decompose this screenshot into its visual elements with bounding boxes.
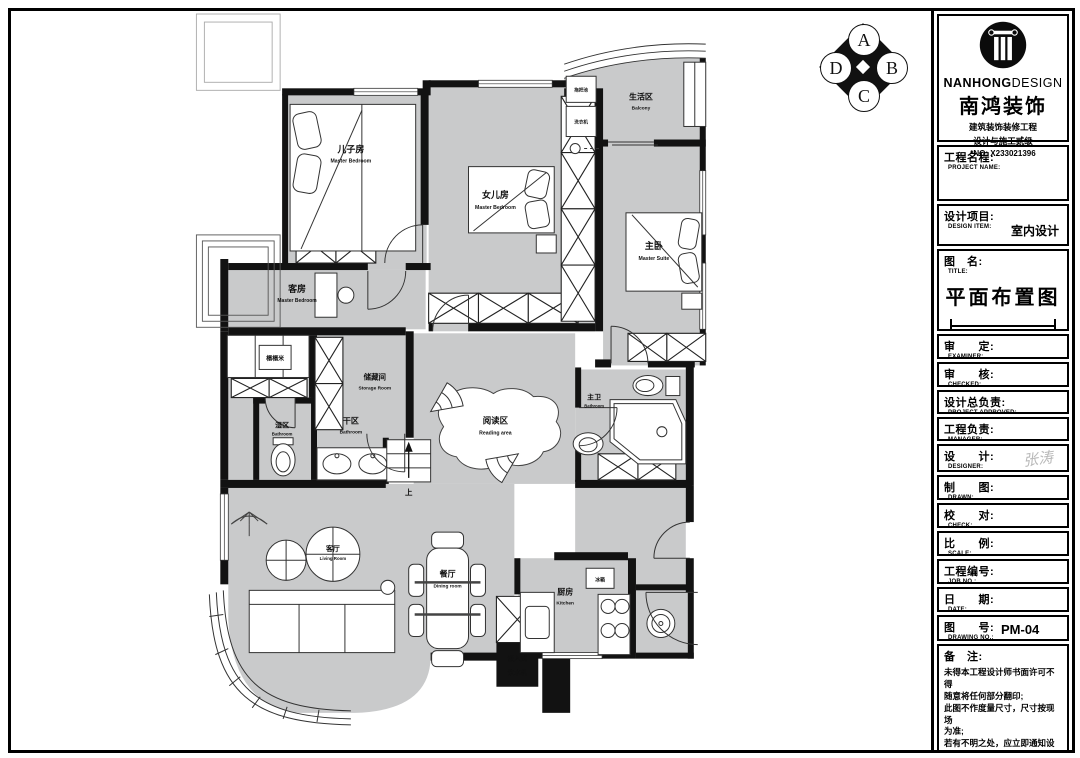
design-item-value: 室内设计 bbox=[1011, 222, 1059, 239]
label-storage: 储藏间 bbox=[364, 371, 386, 381]
row-project-name: 工程名程: PROJECT NAME: bbox=[937, 145, 1069, 201]
svg-text:Balcony: Balcony bbox=[632, 105, 651, 111]
row-notes: 备 注: 未得本工程设计师书面许可不得 随意将任何部分翻印; 此图不作度量尺寸，… bbox=[937, 644, 1069, 750]
drawing-no-value: PM-04 bbox=[1001, 622, 1039, 637]
svg-text:Bathroom: Bathroom bbox=[340, 430, 363, 436]
svg-text:Dining room: Dining room bbox=[434, 583, 462, 589]
designer-signature: 张涛 bbox=[1022, 446, 1055, 471]
title-block: NANHONGDESIGN 南鸿装饰 建筑装饰装修工程 设计与施工贰级 *NO:… bbox=[931, 11, 1072, 750]
manager-label: 工程负责: bbox=[944, 421, 1062, 437]
label-built-in-2: 饮水机 bbox=[507, 668, 528, 677]
drawing-title-label: 图 名: bbox=[944, 253, 1062, 269]
date-label: 日 期: bbox=[944, 591, 1062, 607]
checked-label: 审 核: bbox=[944, 366, 1062, 382]
approved-label: 设计总负责: bbox=[944, 394, 1062, 410]
checked-label-en: CHECKED: bbox=[948, 382, 1062, 388]
label-mop-sink: 拖把池 bbox=[574, 86, 588, 93]
stamp-letter-c: C bbox=[848, 80, 880, 112]
project-name-label-en: PROJECT NAME: bbox=[948, 165, 1062, 171]
stamp-letter-b: B bbox=[876, 52, 908, 84]
job-no-label: 工程编号: bbox=[944, 563, 1062, 579]
cert-line1: 建筑装饰装修工程 bbox=[939, 121, 1067, 133]
notes-text: 未得本工程设计师书面许可不得 随意将任何部分翻印; 此图不作度量尺寸，尺寸按现场… bbox=[944, 667, 1062, 750]
row-manager: 工程负责: MANAGER: bbox=[937, 417, 1069, 441]
scale-label: 比 例: bbox=[944, 535, 1062, 551]
svg-text:Master Bedroom: Master Bedroom bbox=[330, 159, 371, 165]
svg-text:Bathroom: Bathroom bbox=[272, 432, 293, 437]
svg-text:Reading area: Reading area bbox=[479, 431, 512, 437]
row-examiner: 审 定: EXAMINER: bbox=[937, 334, 1069, 359]
label-dry-area: 干区 bbox=[343, 417, 359, 426]
label-fridge: 冰箱 bbox=[595, 576, 605, 583]
row-design-item: 设计项目: DESIGN ITEM: 室内设计 bbox=[937, 204, 1069, 246]
label-living: 客厅 bbox=[325, 544, 340, 553]
label-stair-up: 上 bbox=[405, 487, 413, 497]
label-son-bedroom: 儿子房 bbox=[336, 144, 364, 155]
svg-text:Master Bedroom: Master Bedroom bbox=[475, 205, 516, 211]
date-label-en: DATE: bbox=[948, 607, 1062, 613]
row-drawing-no: 图 号: DRAWING NO.: PM-04 bbox=[937, 615, 1069, 641]
examiner-label: 审 定: bbox=[944, 338, 1062, 354]
drawn-label: 制 图: bbox=[944, 479, 1062, 495]
notes-label: 备 注: bbox=[944, 648, 1062, 664]
svg-text:Living Room: Living Room bbox=[320, 556, 347, 561]
label-master-bedroom: 主卧 bbox=[645, 240, 663, 251]
stamp-letter-d: D bbox=[820, 52, 852, 84]
company-logo-box: NANHONGDESIGN 南鸿装饰 建筑装饰装修工程 设计与施工贰级 *NO:… bbox=[937, 14, 1069, 142]
row-date: 日 期: DATE: bbox=[937, 587, 1069, 612]
floor-plan-drawing: 儿子房 Master Bedroom 女儿房 Master Bedroom 主卧… bbox=[11, 11, 931, 750]
row-checked: 审 核: CHECKED: bbox=[937, 362, 1069, 387]
job-no-label-en: JOB NO.: bbox=[948, 579, 1062, 585]
brand-cn: 南鸿装饰 bbox=[939, 90, 1067, 119]
project-name-label: 工程名程: bbox=[944, 149, 1062, 165]
label-kitchen: 厨房 bbox=[557, 586, 573, 596]
row-job-no: 工程编号: JOB NO.: bbox=[937, 559, 1069, 584]
svg-text:Storage Room: Storage Room bbox=[358, 386, 391, 392]
label-balcony: 生活区 bbox=[629, 91, 653, 101]
floor-plan-area: 儿子房 Master Bedroom 女儿房 Master Bedroom 主卧… bbox=[11, 11, 931, 750]
label-daughter-bedroom: 女儿房 bbox=[482, 189, 509, 200]
svg-text:Master Bedroom: Master Bedroom bbox=[277, 298, 317, 304]
row-check: 校 对: CHECK: bbox=[937, 503, 1069, 528]
svg-text:Master Suite: Master Suite bbox=[639, 256, 670, 262]
svg-text:Kitchen: Kitchen bbox=[556, 600, 574, 606]
label-guest-bedroom: 客房 bbox=[287, 283, 306, 294]
title-dimension-line bbox=[950, 315, 1056, 327]
label-wet-area: 湿区 bbox=[275, 421, 289, 430]
examiner-label-en: EXAMINER: bbox=[948, 354, 1062, 360]
row-scale: 比 例: SCALE: bbox=[937, 531, 1069, 556]
stamp-letter-a: A bbox=[848, 24, 880, 56]
check-label: 校 对: bbox=[944, 507, 1062, 523]
label-tatami: 榻榻米 bbox=[265, 354, 284, 362]
row-designer: 设 计: DESIGNER: 张涛 bbox=[937, 444, 1069, 472]
drawing-title-value: 平面布置图 bbox=[944, 281, 1062, 310]
label-master-bath: 主卫 bbox=[587, 393, 601, 402]
row-project-approved: 设计总负责: PROJECT APPROVED: bbox=[937, 390, 1069, 414]
scale-label-en: SCALE: bbox=[948, 551, 1062, 557]
row-drawing-title: 图 名: TITLE: 平面布置图 bbox=[937, 249, 1069, 331]
svg-text:Bathroom: Bathroom bbox=[584, 404, 604, 409]
drawn-label-en: DRAWN: bbox=[948, 495, 1062, 501]
manager-label-en: MANAGER: bbox=[948, 437, 1062, 443]
brand-en: NANHONGDESIGN bbox=[939, 76, 1067, 90]
label-dining: 餐厅 bbox=[439, 568, 456, 578]
terrace-outline bbox=[196, 14, 280, 90]
check-label-en: CHECK: bbox=[948, 523, 1062, 529]
row-drawn: 制 图: DRAWN: bbox=[937, 475, 1069, 500]
drawing-sheet: 儿子房 Master Bedroom 女儿房 Master Bedroom 主卧… bbox=[8, 8, 1075, 753]
drawing-title-label-en: TITLE: bbox=[948, 269, 1062, 275]
label-washer: 洗衣机 bbox=[574, 118, 588, 125]
column-logo-icon bbox=[978, 20, 1028, 70]
approved-label-en: PROJECT APPROVED: bbox=[948, 410, 1062, 416]
label-reading: 阅读区 bbox=[483, 416, 509, 426]
quality-stamp: A B C D bbox=[811, 15, 915, 119]
label-built-in-1: 嵌入式 bbox=[508, 654, 528, 663]
